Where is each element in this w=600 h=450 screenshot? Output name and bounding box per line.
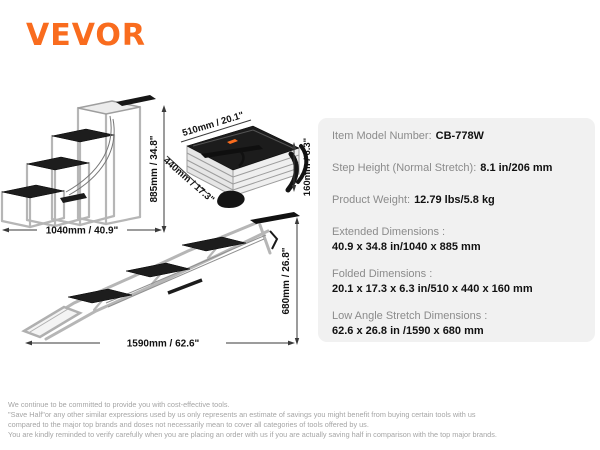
spec-row-low-angle-dimensions: Low Angle Stretch Dimensions : 62.6 x 26… bbox=[332, 309, 587, 339]
disclaimer-line: "Save Half"or any other similar expressi… bbox=[8, 410, 600, 420]
low-angle-width-label: 1590mm / 62.6" bbox=[127, 339, 200, 350]
top-support-pad bbox=[116, 95, 156, 106]
spec-label: Low Angle Stretch Dimensions : bbox=[332, 309, 587, 324]
spec-label: Product Weight: bbox=[332, 194, 410, 206]
spec-panel: Item Model Number:CB-778W Step Height (N… bbox=[318, 118, 595, 342]
spec-label: Folded Dimensions : bbox=[332, 267, 587, 282]
support-cable bbox=[108, 239, 264, 307]
low-angle-frame bbox=[24, 212, 300, 339]
disclaimer: We continue to be committed to provide y… bbox=[8, 400, 600, 440]
support-bar bbox=[168, 280, 202, 293]
extended-height-label: 885mm / 34.8" bbox=[149, 135, 160, 202]
spec-value: 20.1 x 17.3 x 6.3 in/510 x 440 x 160 mm bbox=[332, 282, 587, 297]
low-angle-height-label: 680mm / 26.8" bbox=[281, 247, 292, 314]
spec-label: Extended Dimensions : bbox=[332, 225, 587, 240]
brand-logo: VEVOR bbox=[26, 18, 146, 53]
low-angle-stairs-diagram: 680mm / 26.8" 1590mm / 62.6" bbox=[10, 203, 325, 358]
spec-value: 40.9 x 34.8 in/1040 x 885 mm bbox=[332, 240, 587, 255]
spec-row-extended-dimensions: Extended Dimensions : 40.9 x 34.8 in/104… bbox=[332, 225, 587, 255]
spec-value: CB-778W bbox=[436, 130, 484, 142]
step-tread bbox=[52, 129, 114, 142]
folded-height-label: 160mm / 6.3" bbox=[302, 138, 313, 196]
top-support-pad bbox=[250, 212, 300, 224]
spec-row-folded-dimensions: Folded Dimensions : 20.1 x 17.3 x 6.3 in… bbox=[332, 267, 587, 297]
spec-value: 8.1 in/206 mm bbox=[480, 162, 552, 174]
spec-value: 12.79 lbs/5.8 kg bbox=[414, 194, 495, 206]
spec-row-model: Item Model Number:CB-778W bbox=[332, 129, 587, 143]
spec-row-weight: Product Weight:12.79 lbs/5.8 kg bbox=[332, 193, 587, 207]
product-spec-sheet: VEVOR bbox=[0, 0, 600, 450]
hinge-mark bbox=[270, 231, 277, 249]
disclaimer-line: compared to the major top brands and dos… bbox=[8, 420, 600, 430]
spec-label: Step Height (Normal Stretch): bbox=[332, 162, 476, 174]
bottom-ramp-flap bbox=[24, 307, 80, 337]
disclaimer-line: You are kindly reminded to verify carefu… bbox=[8, 430, 600, 440]
spec-value: 62.6 x 26.8 in /1590 x 680 mm bbox=[332, 324, 587, 339]
spec-label: Item Model Number: bbox=[332, 130, 432, 142]
spec-row-step-height: Step Height (Normal Stretch):8.1 in/206 … bbox=[332, 161, 587, 175]
disclaimer-line: We continue to be committed to provide y… bbox=[8, 400, 600, 410]
